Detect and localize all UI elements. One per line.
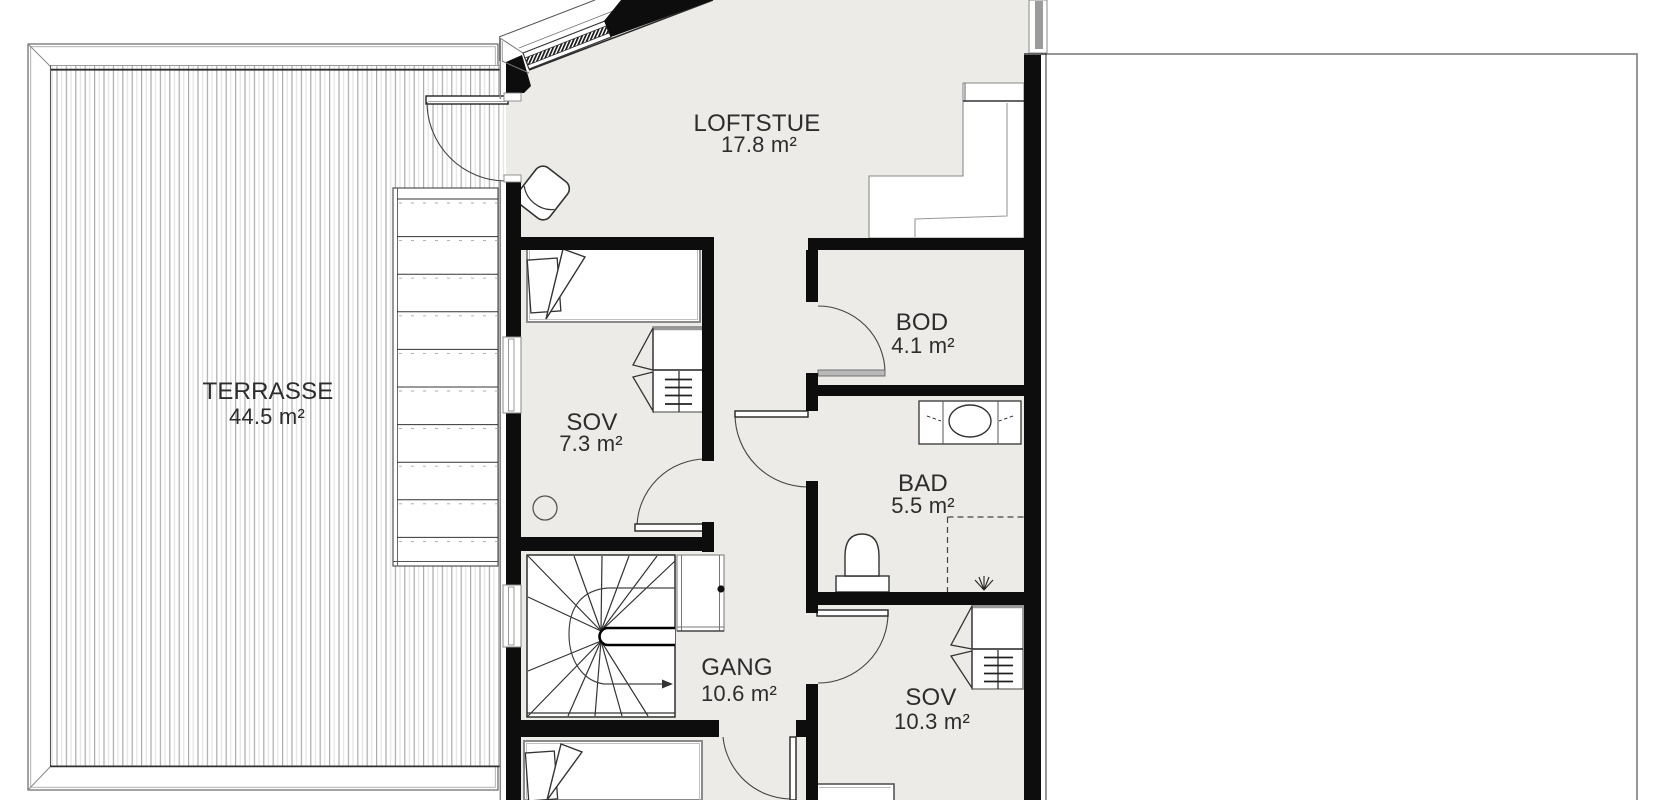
svg-text:10.6 m²: 10.6 m² — [701, 681, 777, 706]
svg-text:BOD: BOD — [896, 309, 949, 336]
svg-text:4.1 m²: 4.1 m² — [891, 333, 955, 358]
svg-text:44.5 m²: 44.5 m² — [229, 404, 305, 429]
svg-text:GANG: GANG — [701, 654, 772, 681]
svg-text:17.8 m²: 17.8 m² — [721, 132, 797, 157]
svg-text:TERRASSE: TERRASSE — [203, 378, 334, 405]
svg-text:10.3 m²: 10.3 m² — [894, 709, 970, 734]
svg-text:7.3 m²: 7.3 m² — [559, 431, 623, 456]
svg-text:SOV: SOV — [905, 684, 956, 711]
svg-text:5.5 m²: 5.5 m² — [891, 493, 955, 518]
